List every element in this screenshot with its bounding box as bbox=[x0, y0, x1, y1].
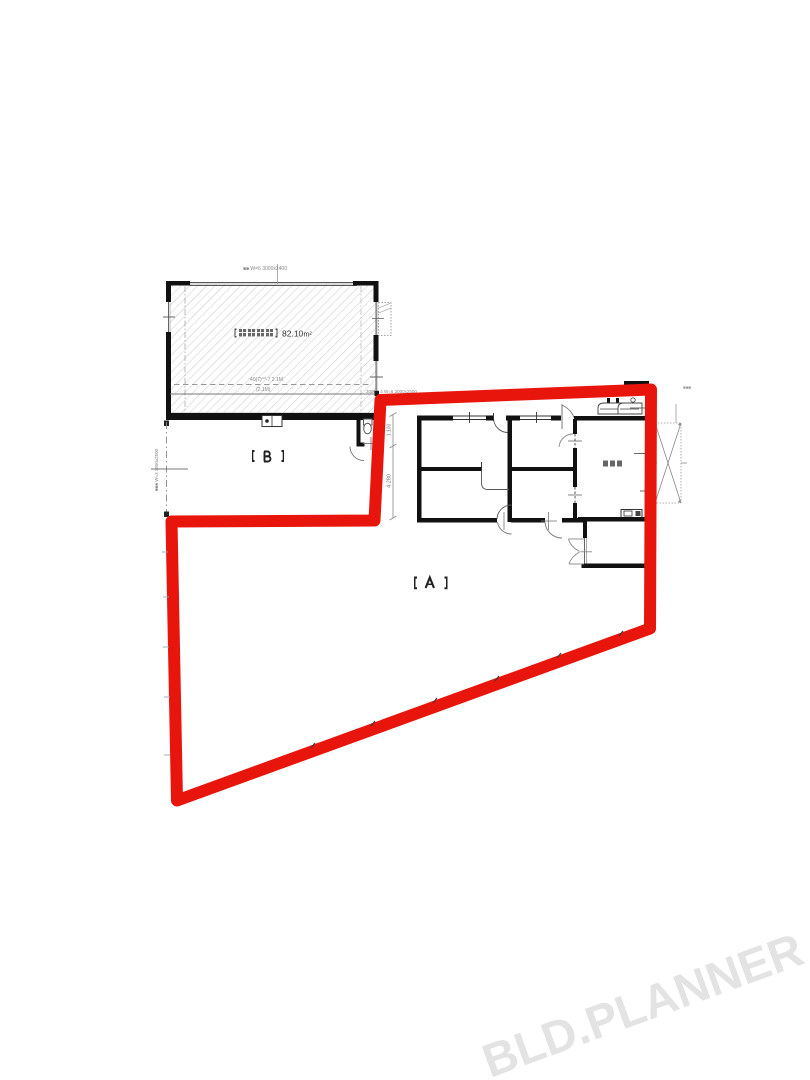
svg-text:■■■ W=3 2850x2500: ■■■ W=3 2850x2500 bbox=[154, 448, 159, 491]
svg-text:■■■: ■■■ bbox=[683, 385, 691, 390]
svg-text:40(7)^*-7 2.1M: 40(7)^*-7 2.1M bbox=[250, 377, 283, 383]
svg-text:■■ W=6 3000x2400: ■■ W=6 3000x2400 bbox=[243, 266, 287, 272]
svg-text:4.280: 4.280 bbox=[387, 474, 393, 488]
svg-text:82.10: 82.10 bbox=[282, 329, 304, 339]
svg-text:1.100: 1.100 bbox=[387, 424, 393, 437]
svg-text:(2.1M): (2.1M) bbox=[256, 387, 271, 393]
svg-text:m²: m² bbox=[304, 332, 313, 339]
